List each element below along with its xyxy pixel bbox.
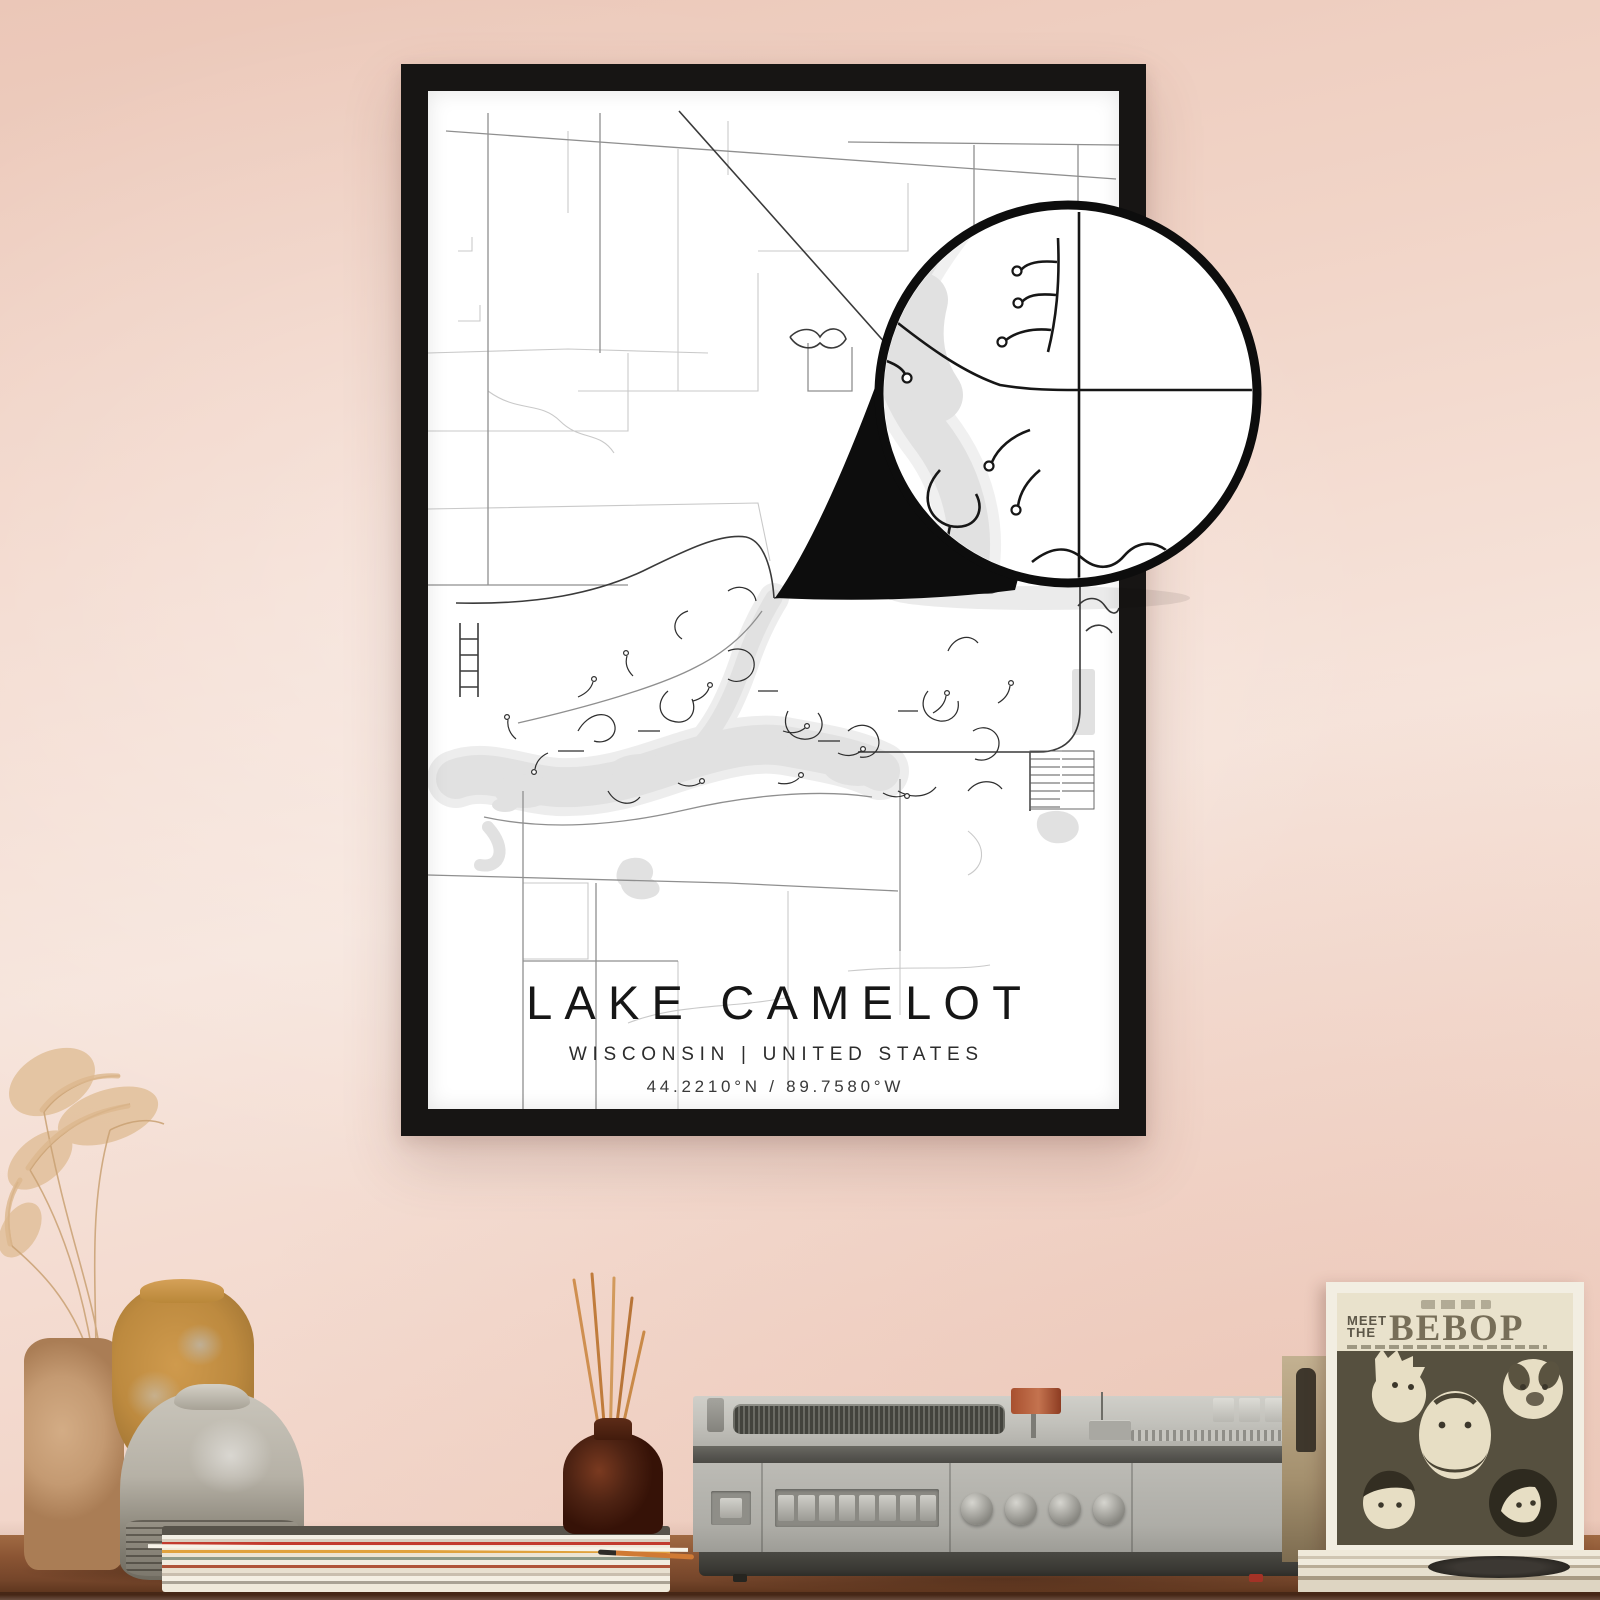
magazine-stack [162, 1526, 670, 1592]
bass-knob[interactable] [1005, 1493, 1037, 1525]
tan-vase [24, 1338, 124, 1570]
tonearm-stem [1031, 1412, 1036, 1438]
poster-coordinates: 44.2210°N / 89.7580°W [428, 1077, 1119, 1097]
turntable-deck [693, 1396, 1315, 1446]
sleeve-title-band: MEET THE BEBOP [1337, 1293, 1573, 1351]
magnifier-zoom-bubble [750, 188, 1272, 612]
sleeve-faces-art [1337, 1351, 1573, 1545]
sleeve-pretitle: MEET THE [1347, 1315, 1387, 1339]
preset-button-row[interactable] [775, 1489, 939, 1527]
player-trim-strip [693, 1446, 1315, 1463]
back-record-sleeve [1282, 1356, 1330, 1562]
player-front-panel [693, 1463, 1315, 1552]
volume-knob[interactable] [961, 1493, 993, 1525]
poster-subtitle: WISCONSIN | UNITED STATES [428, 1044, 1119, 1066]
poster-title: LAKE CAMELOT [428, 975, 1119, 1030]
turntable-platter[interactable] [733, 1406, 1005, 1434]
player-foot-red [1249, 1574, 1263, 1582]
record-sleeve: MEET THE BEBOP [1326, 1282, 1584, 1556]
player-base [699, 1552, 1309, 1576]
tonearm-head[interactable] [1011, 1388, 1061, 1414]
tuning-knob[interactable] [1093, 1493, 1125, 1525]
poster-title-block: LAKE CAMELOT WISCONSIN | UNITED STATES 4… [428, 975, 1119, 1097]
power-button[interactable] [711, 1491, 751, 1525]
sleeve-title: BEBOP [1389, 1307, 1524, 1350]
reed-diffuser-bottle [563, 1432, 663, 1534]
deck-vent [1131, 1430, 1307, 1441]
vinyl-record [1428, 1556, 1570, 1578]
player-foot [733, 1574, 747, 1582]
record-player [693, 1396, 1315, 1582]
deck-switch[interactable] [1089, 1420, 1131, 1440]
record-sleeve-cover: MEET THE BEBOP [1337, 1293, 1573, 1545]
sleeve-caption-line [1347, 1345, 1547, 1349]
turntable-lever[interactable] [707, 1398, 724, 1432]
treble-knob[interactable] [1049, 1493, 1081, 1525]
room-scene: LAKE CAMELOT WISCONSIN | UNITED STATES 4… [0, 0, 1600, 1600]
